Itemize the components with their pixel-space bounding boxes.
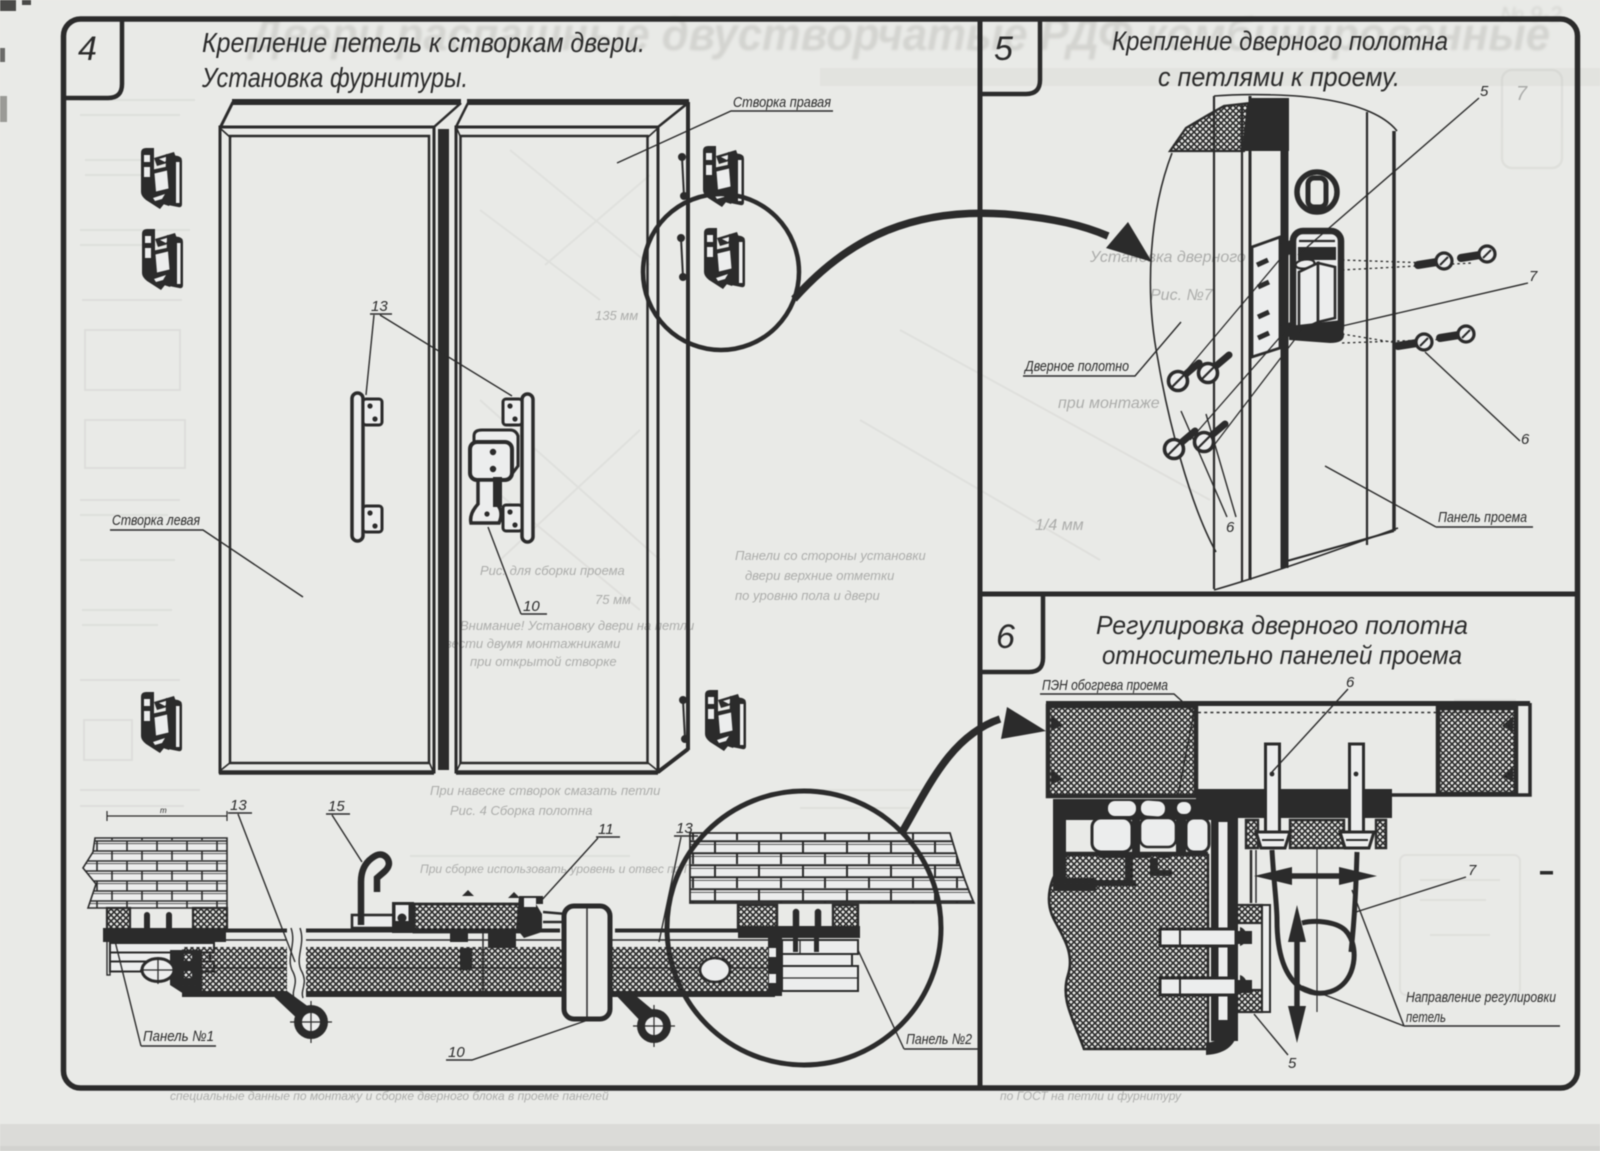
svg-text:двери верхние отметки: двери верхние отметки — [745, 568, 894, 583]
svg-text:10: 10 — [448, 1044, 465, 1061]
svg-text:Панель №2: Панель №2 — [906, 1031, 973, 1048]
svg-text:Створка правая: Створка правая — [733, 94, 831, 111]
svg-text:Створка левая: Створка левая — [112, 512, 200, 529]
svg-text:7: 7 — [1516, 83, 1528, 105]
svg-text:7: 7 — [1468, 862, 1477, 879]
svg-text:5: 5 — [1288, 1055, 1297, 1072]
svg-text:Направление регулировки: Направление регулировки — [1406, 989, 1557, 1006]
svg-text:Рис. для сборки проема: Рис. для сборки проема — [480, 563, 625, 578]
svg-text:при открытой створке: при открытой створке — [470, 654, 617, 669]
svg-text:при монтаже: при монтаже — [1058, 395, 1160, 412]
svg-text:5: 5 — [994, 30, 1013, 68]
svg-text:относительно панелей проема: относительно панелей проема — [1102, 640, 1462, 670]
svg-text:6: 6 — [1226, 519, 1235, 536]
svg-text:Регулировка дверного полотна: Регулировка дверного полотна — [1096, 610, 1468, 640]
svg-text:13: 13 — [676, 820, 693, 837]
svg-text:75 мм: 75 мм — [595, 592, 631, 607]
svg-text:6: 6 — [1346, 674, 1355, 691]
svg-text:1/4 мм: 1/4 мм — [1035, 517, 1084, 534]
svg-text:11: 11 — [598, 821, 614, 838]
svg-text:Панель №1: Панель №1 — [143, 1028, 214, 1045]
svg-text:специальные данные по монтажу: специальные данные по монтажу и сборке д… — [170, 1089, 609, 1103]
svg-text:№ 9-2: № 9-2 — [1500, 2, 1562, 27]
svg-text:135 мм: 135 мм — [595, 308, 638, 323]
svg-text:Крепление петель к створкам дв: Крепление петель к створкам двери. — [202, 27, 645, 58]
svg-text:петель: петель — [1406, 1009, 1446, 1026]
svg-text:Панели со стороны установки: Панели со стороны установки — [735, 548, 926, 563]
svg-text:10: 10 — [523, 598, 540, 615]
svg-text:13: 13 — [371, 298, 388, 315]
svg-text:ПЭН обогрева проема: ПЭН обогрева проема — [1042, 677, 1168, 694]
svg-text:6: 6 — [1521, 431, 1530, 448]
svg-text:по уровню пола и двери: по уровню пола и двери — [735, 588, 880, 603]
svg-text:m: m — [160, 806, 167, 815]
svg-text:15: 15 — [328, 798, 345, 815]
svg-text:Установка фурнитуры.: Установка фурнитуры. — [201, 62, 468, 93]
svg-text:При сборке использовать уровен: При сборке использовать уровень и отвес … — [420, 862, 717, 876]
svg-text:При навеске створок смазать пе: При навеске створок смазать петли — [430, 783, 660, 798]
svg-text:4: 4 — [78, 30, 97, 68]
svg-text:13: 13 — [230, 797, 247, 814]
svg-text:6: 6 — [996, 618, 1015, 656]
svg-text:Крепление дверного полотна: Крепление дверного полотна — [1112, 26, 1448, 56]
svg-text:Рис. №7: Рис. №7 — [1150, 287, 1214, 304]
svg-text:7: 7 — [1529, 268, 1538, 285]
svg-text:вести двумя монтажниками: вести двумя монтажниками — [445, 636, 620, 651]
svg-text:Панель проема: Панель проема — [1438, 509, 1527, 526]
svg-text:5: 5 — [1480, 83, 1489, 100]
svg-text:по ГОСТ на петли и фурнитуру: по ГОСТ на петли и фурнитуру — [1000, 1089, 1182, 1103]
svg-text:Дверное полотно: Дверное полотно — [1023, 358, 1129, 375]
svg-text:Рис. 4 Сборка полотна: Рис. 4 Сборка полотна — [450, 803, 592, 818]
svg-text:с петлями к проему.: с петлями к проему. — [1158, 62, 1400, 92]
